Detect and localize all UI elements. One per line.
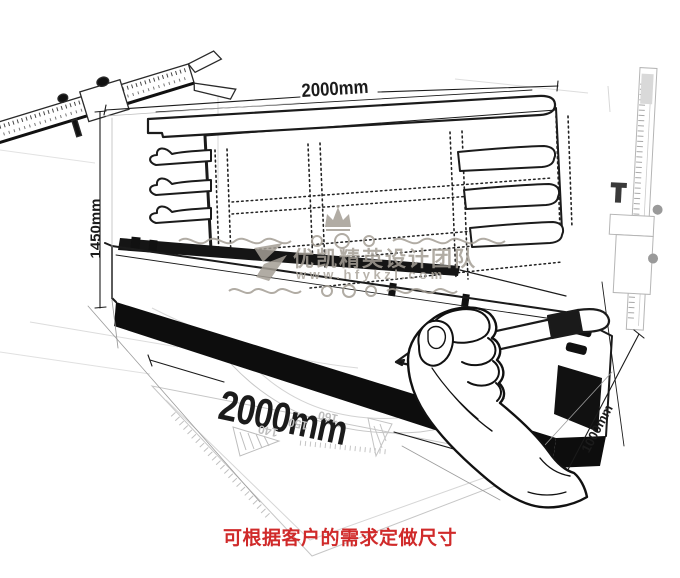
watermark: 优凯精英设计团队 www.hfykzl.com <box>175 203 523 303</box>
product-dimension-illustration: 2000mm 1450mm 2000mm 1000mm 140 150 160 … <box>0 0 680 578</box>
crown-icon <box>322 205 356 231</box>
flourish-ornament-bottom <box>227 283 459 299</box>
watermark-website: www.hfykzl.com <box>296 267 446 282</box>
vertical-ruler-icon <box>603 66 670 330</box>
customization-caption: 可根据客户的需求定做尺寸 <box>0 523 680 550</box>
team-logo-icon <box>253 243 289 283</box>
dimension-label-left-height: 1450mm <box>89 193 104 265</box>
dimension-label-top-width: 2000mm <box>301 78 369 101</box>
